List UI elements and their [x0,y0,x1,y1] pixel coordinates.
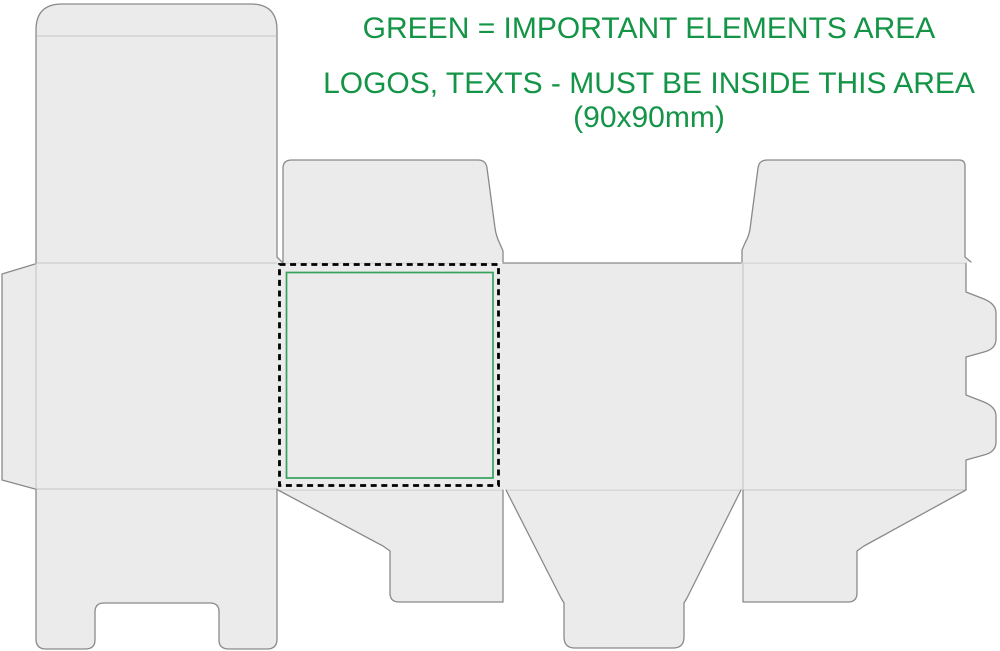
front-top-flap [283,160,503,262]
back-bottom-tuck-flap [506,490,741,648]
left-bottom-flap [36,489,277,649]
front-panel [277,263,503,489]
left-side-panel [35,263,277,489]
lid-top-flap [36,4,283,263]
note-line-1: GREEN = IMPORTANT ELEMENTS AREA [299,14,999,44]
right-top-flap [742,160,971,262]
note-line-2: LOGOS, TEXTS - MUST BE INSIDE THIS AREA [299,69,999,99]
dieline-template-page: GREEN = IMPORTANT ELEMENTS AREA LOGOS, T… [0,0,1000,651]
right-side-panel [741,263,996,490]
right-bottom-flap [743,490,966,602]
note-line-3: (90x90mm) [299,103,999,133]
back-panel [503,263,741,489]
glue-flap [2,264,35,489]
